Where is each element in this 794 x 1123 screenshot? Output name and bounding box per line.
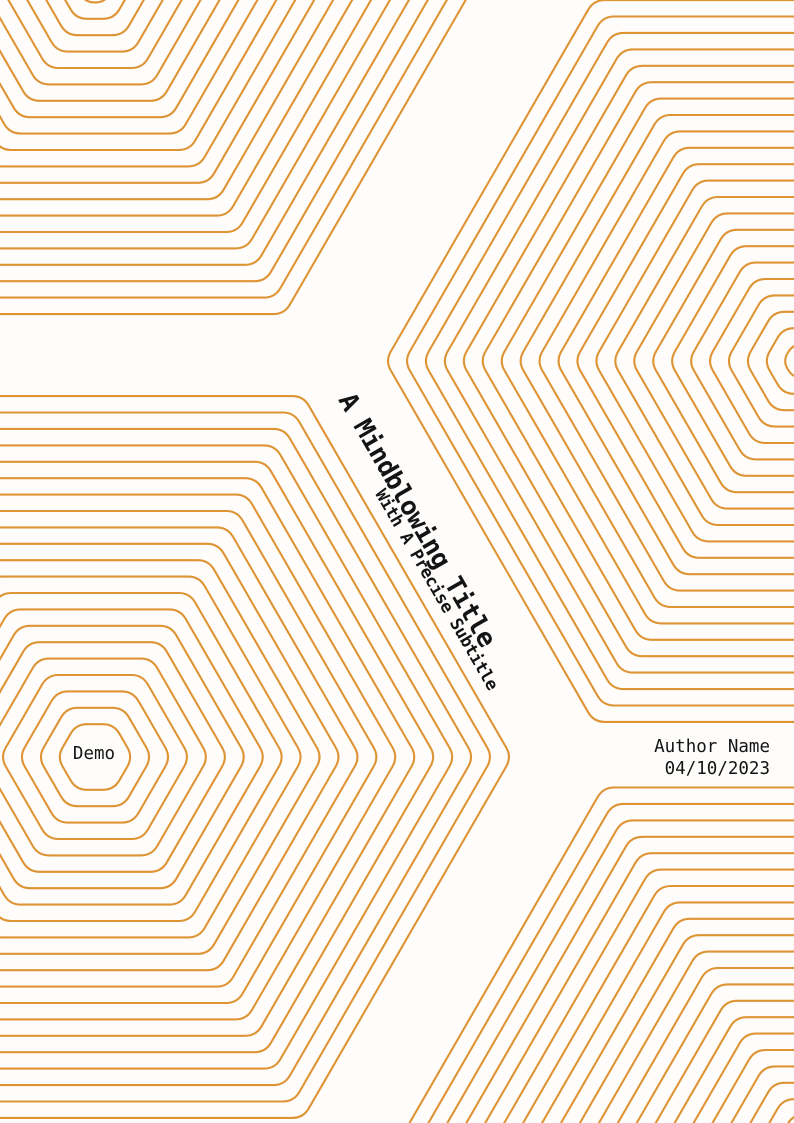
hexagon-ring — [0, 0, 376, 232]
hexagon-ring — [464, 66, 794, 656]
document-date: 04/10/2023 — [654, 758, 770, 780]
hexagon-ring — [577, 935, 794, 1123]
hexagon-ring — [0, 0, 338, 199]
hexagon-ring — [0, 0, 433, 281]
hexagon-ring — [748, 312, 794, 410]
hexagon-ring — [767, 328, 794, 394]
hexagon-ring — [559, 148, 794, 574]
hexagon-ring — [0, 560, 320, 954]
hexagon-ring — [0, 577, 301, 938]
hexagon-ring — [785, 345, 794, 378]
hexagon-ring — [0, 527, 357, 986]
title-page: A Mindblowing Title With A Precise Subti… — [0, 0, 794, 1123]
hexagon-ring — [0, 544, 338, 970]
hexagon-pattern-background — [0, 0, 794, 1123]
hexagon-ring — [748, 1083, 794, 1123]
hexagon-ring — [3, 0, 187, 68]
hexagon-ring — [691, 1034, 794, 1123]
hexagon-ring — [78, 0, 112, 2]
hexagon-ring — [22, 0, 168, 52]
center-hexagon-label: Demo — [73, 744, 115, 764]
hexagon-ring — [0, 609, 263, 904]
hexagon-ring — [464, 837, 794, 1123]
hexagon-ring — [502, 99, 794, 624]
hexagon-ring — [577, 164, 794, 558]
author-name: Author Name — [654, 736, 770, 758]
author-block: Author Name 04/10/2023 — [654, 736, 770, 781]
hexagon-ring — [0, 462, 433, 1052]
hexagon-ring — [41, 0, 149, 35]
hexagon-ring — [785, 1116, 794, 1123]
hexagon-ring — [729, 1066, 794, 1123]
hexagon-ring — [691, 263, 794, 460]
hexagon-ring — [615, 968, 794, 1123]
hexagon-ring — [596, 181, 794, 542]
hexagon-ring — [426, 804, 794, 1123]
hexagon-ring — [0, 0, 320, 183]
hexagon-ring — [634, 213, 794, 508]
hexagon-ring — [445, 49, 794, 672]
hexagon-ring — [0, 445, 452, 1068]
hexagon-ring — [0, 626, 244, 888]
